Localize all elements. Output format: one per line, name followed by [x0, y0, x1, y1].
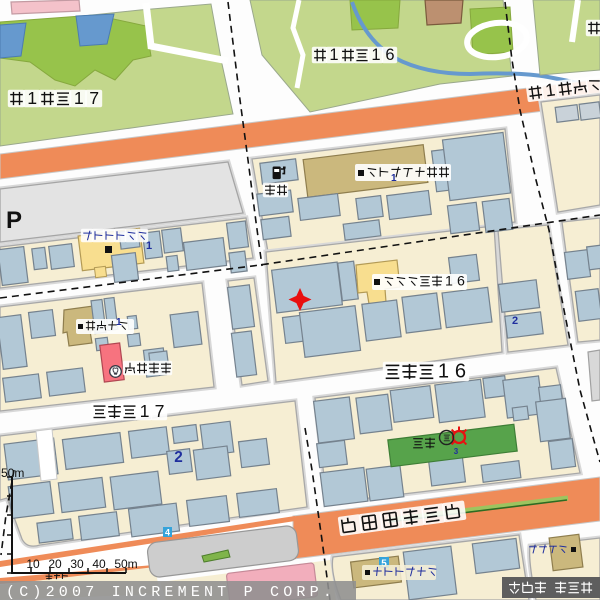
svg-text:1: 1 [140, 401, 150, 421]
svg-text:1: 1 [371, 46, 380, 64]
svg-text:1: 1 [445, 273, 453, 289]
svg-text:P: P [6, 207, 22, 234]
svg-text:1: 1 [391, 173, 397, 184]
svg-text:1: 1 [74, 88, 84, 108]
svg-text:6: 6 [455, 361, 466, 383]
svg-text:50m: 50m [114, 557, 137, 571]
svg-text:2: 2 [174, 449, 183, 466]
svg-text:10: 10 [26, 557, 40, 571]
svg-text:1: 1 [146, 240, 152, 252]
svg-text:7: 7 [155, 401, 165, 421]
svg-text:6: 6 [385, 46, 394, 64]
svg-text:1: 1 [329, 46, 338, 64]
svg-text:1: 1 [116, 317, 122, 328]
svg-text:1: 1 [438, 361, 449, 383]
svg-text:20: 20 [48, 557, 62, 571]
svg-text:30: 30 [70, 557, 84, 571]
svg-text:40: 40 [92, 557, 106, 571]
svg-text:6: 6 [457, 273, 465, 289]
svg-text:3: 3 [454, 447, 459, 456]
svg-text:1: 1 [27, 88, 37, 108]
svg-text:50m: 50m [1, 466, 24, 480]
svg-text:4: 4 [165, 528, 170, 538]
svg-text:(C)2007 INCREMENT P CORP.: (C)2007 INCREMENT P CORP. [6, 584, 336, 600]
svg-text:7: 7 [89, 88, 99, 108]
svg-text:2: 2 [512, 315, 518, 327]
